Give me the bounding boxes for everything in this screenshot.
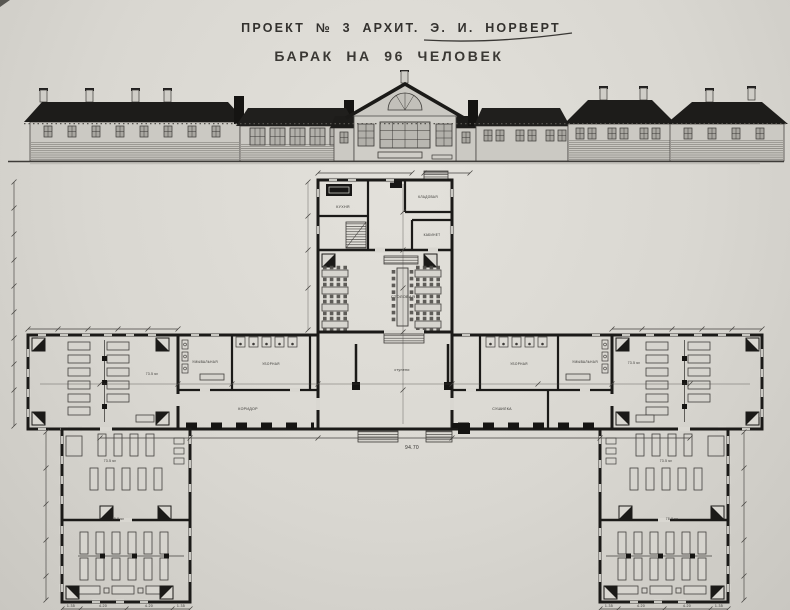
label-entry-steps: ступени: [394, 368, 409, 372]
elevation-left-end-block: [24, 88, 246, 161]
elevation-center-pavilion: [330, 70, 480, 161]
room-label-corridor: КОРИДОР: [238, 407, 258, 411]
dim-seg: 4.20: [99, 604, 107, 608]
entry-porch: [384, 334, 424, 343]
room-label-pantry: КЛАДОВАЯ: [418, 195, 438, 199]
scanned-drawing-page: ПРОЕКТ № 3 АРХИТ. Э. И. НОРВЕРТ БАРАК НА…: [0, 0, 790, 610]
room-label-washroom-right: УМЫВАЛЬНАЯ: [572, 360, 598, 364]
area-label-wing-left-upper: 73.5 м²: [104, 459, 116, 463]
dim-seg: 4.20: [637, 604, 645, 608]
serving-counter: [384, 256, 418, 264]
dim-seg: 1.35: [67, 604, 75, 608]
left-wing: 73.5 м² 78.0 м²: [59, 427, 192, 605]
kitchen-stove: [326, 184, 352, 196]
room-label-washroom-left: УМЫВАЛЬНАЯ: [192, 360, 218, 364]
area-label-wing-left-lower: 78.0 м²: [112, 517, 124, 521]
south-steps-left: [358, 431, 398, 442]
title-underline-stroke: [420, 30, 580, 46]
room-label-office: КАБИНЕТ: [424, 233, 441, 237]
dim-seg: 1.35: [605, 604, 613, 608]
dim-overall-width: 94.70: [405, 445, 419, 451]
dim-seg: 4.20: [683, 604, 691, 608]
project-subtitle: БАРАК НА 96 ЧЕЛОВЕК: [0, 48, 784, 64]
scan-artifact: [0, 0, 10, 7]
floor-plan-drawing: КУХНЯ КЛАДОВАЯ КАБИНЕТ: [0, 168, 790, 610]
right-wing: 73.5 м² 78.0 м²: [597, 427, 730, 605]
dim-seg: 4.20: [145, 604, 153, 608]
south-steps-right: [426, 431, 452, 442]
area-label-wing-right-lower: 78.0 м²: [666, 517, 678, 521]
right-connector: УБОРНАЯ УМЫВАЛЬНАЯ СУШИЛКА: [452, 332, 614, 429]
area-label-wing-right-upper: 73.5 м²: [660, 459, 672, 463]
wing-right-bottom-dims: 1.35 4.20 4.20 1.35: [598, 604, 731, 610]
elevation-right-connector: [468, 100, 570, 161]
left-connector: УМЫВАЛЬНАЯ УБОРНАЯ КОРИДОР: [176, 332, 318, 429]
central-vestibule: ступени: [316, 330, 470, 442]
dining-hall: СТОЛОВАЯ: [322, 254, 442, 330]
area-label-dorm-left: 73.5 м²: [146, 372, 158, 376]
building-elevation-drawing: [0, 70, 790, 172]
wing-left-bottom-dims: 1.35 4.20 4.20 1.35: [60, 604, 193, 610]
dining-tables-left: [322, 268, 349, 331]
room-label-toilet-right: УБОРНАЯ: [510, 362, 528, 366]
dim-seg: 1.35: [177, 604, 185, 608]
room-label-drying: СУШИЛКА: [492, 407, 512, 411]
area-label-dorm-right: 73.5 м²: [628, 361, 640, 365]
dining-tables-right: [415, 268, 442, 331]
project-title: ПРОЕКТ № 3 АРХИТ. Э. И. НОРВЕРТ: [6, 21, 790, 35]
dim-seg: 1.35: [715, 604, 723, 608]
right-dormitory: 73.5 м²: [612, 332, 765, 431]
room-label-kitchen: КУХНЯ: [336, 205, 350, 209]
stair: [346, 222, 366, 248]
room-label-toilet-left: УБОРНАЯ: [262, 362, 280, 366]
